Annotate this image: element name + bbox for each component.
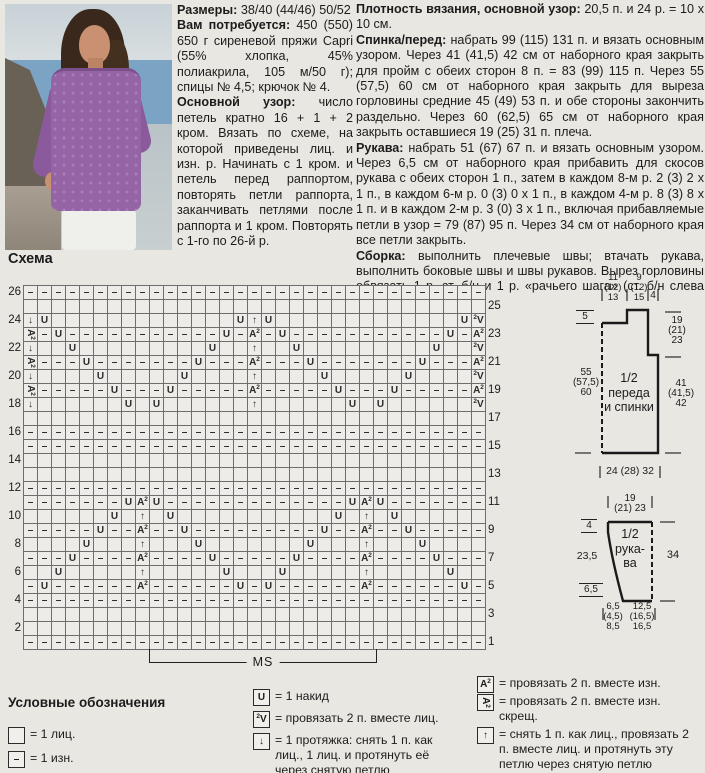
magazine-page: Размеры: 38/40 (44/46) 50/52Вам потребуе…	[0, 0, 705, 773]
chart-cell: –	[192, 552, 206, 566]
chart-cell	[374, 412, 388, 426]
sleeve-upper-height: 23,5	[572, 551, 602, 561]
chart-cell	[150, 566, 164, 580]
chart-cell: –	[108, 524, 122, 538]
chart-cell: –	[430, 384, 444, 398]
chart-cell	[52, 510, 66, 524]
chart-cell	[192, 622, 206, 636]
chart-cell	[220, 314, 234, 328]
pattern-paragraph: Размеры: 38/40 (44/46) 50/52	[177, 3, 353, 18]
photo-sweater-hem	[51, 202, 141, 215]
chart-cell: –	[136, 594, 150, 608]
chart-cell: –	[38, 328, 52, 342]
chart-cell	[108, 608, 122, 622]
chart-cell: –	[332, 524, 346, 538]
chart-cell: –	[444, 384, 458, 398]
chart-cell: –	[346, 552, 360, 566]
chart-cell: –	[66, 426, 80, 440]
chart-cell	[318, 454, 332, 468]
chart-cell: ↓	[24, 342, 38, 356]
chart-cell	[164, 300, 178, 314]
chart-cell: ↑	[360, 538, 374, 552]
chart-cell	[248, 622, 262, 636]
chart-cell: –	[206, 328, 220, 342]
chart-cell	[220, 468, 234, 482]
chart-cell: U	[262, 314, 276, 328]
chart-cell: –	[206, 496, 220, 510]
chart-cell	[290, 608, 304, 622]
chart-cell	[374, 314, 388, 328]
chart-cell: U	[164, 510, 178, 524]
chart-cell: –	[66, 524, 80, 538]
chart-cell: –	[94, 594, 108, 608]
chart-cell: –	[108, 552, 122, 566]
chart-cell: –	[290, 482, 304, 496]
chart-cell: –	[164, 440, 178, 454]
chart-cell	[262, 538, 276, 552]
chart-cell	[318, 300, 332, 314]
chart-cell: –	[178, 384, 192, 398]
chart-cell	[472, 454, 486, 468]
chart-cell	[178, 538, 192, 552]
knitting-chart: –––––––––––––––––––––––––––––––––↓UU↑UU2…	[23, 285, 486, 650]
chart-cell: U	[38, 314, 52, 328]
chart-cell: –	[122, 636, 136, 650]
chart-cell	[206, 608, 220, 622]
chart-cell	[458, 398, 472, 412]
chart-cell: –	[318, 426, 332, 440]
chart-cell: –	[52, 552, 66, 566]
legend-symbol-box: –	[8, 751, 25, 768]
chart-cell: 2V	[472, 314, 486, 328]
row-number: 13	[488, 467, 508, 481]
chart-cell: –	[430, 356, 444, 370]
chart-cell	[416, 468, 430, 482]
chart-cell: –	[136, 482, 150, 496]
chart-cell	[402, 510, 416, 524]
row-number	[0, 579, 21, 593]
chart-cell: –	[24, 286, 38, 300]
chart-cell	[472, 538, 486, 552]
chart-cell: U	[122, 496, 136, 510]
chart-cell	[472, 412, 486, 426]
chart-cell: A2	[24, 328, 38, 342]
chart-row-numbers-left: 2624222018161412108642	[0, 285, 21, 649]
chart-cell	[38, 538, 52, 552]
chart-cell: –	[38, 594, 52, 608]
chart-cell: –	[178, 286, 192, 300]
chart-cell	[346, 608, 360, 622]
chart-cell: –	[444, 356, 458, 370]
chart-cell: –	[346, 636, 360, 650]
chart-cell: –	[304, 286, 318, 300]
chart-cell: –	[24, 594, 38, 608]
chart-cell	[402, 454, 416, 468]
chart-cell	[52, 608, 66, 622]
chart-cell: –	[332, 286, 346, 300]
chart-cell: –	[416, 524, 430, 538]
chart-cell: –	[220, 594, 234, 608]
pattern-paragraph: Плотность вязания, основной узор: 20,5 п…	[356, 2, 704, 33]
chart-cell: –	[262, 594, 276, 608]
chart-cell: –	[234, 482, 248, 496]
chart-cell	[262, 412, 276, 426]
chart-cell	[430, 566, 444, 580]
chart-cell	[444, 608, 458, 622]
sleeve-bottom-right: 12,5(16,5)16,5	[625, 602, 659, 632]
chart-cell	[430, 314, 444, 328]
chart-cell: –	[164, 426, 178, 440]
chart-cell: ↓	[24, 370, 38, 384]
chart-cell	[192, 300, 206, 314]
chart-cell: –	[122, 580, 136, 594]
chart-cell	[94, 566, 108, 580]
chart-cell: –	[122, 524, 136, 538]
chart-cell: –	[220, 496, 234, 510]
chart-cell: ↑	[136, 538, 150, 552]
chart-cell	[458, 300, 472, 314]
chart-cell	[164, 608, 178, 622]
chart-cell: –	[304, 328, 318, 342]
chart-cell: –	[276, 440, 290, 454]
chart-cell	[192, 468, 206, 482]
legend-symbol-box: U	[253, 689, 270, 706]
chart-cell	[150, 342, 164, 356]
chart-cell: U	[346, 398, 360, 412]
chart-cell: A2	[136, 524, 150, 538]
chart-cell: –	[318, 286, 332, 300]
chart-cell: –	[458, 482, 472, 496]
chart-cell: U	[304, 356, 318, 370]
pattern-paragraph: Спинка/перед: набрать 99 (115) 131 п. и …	[356, 33, 704, 141]
row-number: 18	[0, 397, 21, 411]
chart-cell: –	[472, 524, 486, 538]
chart-cell	[430, 468, 444, 482]
chart-cell: –	[38, 286, 52, 300]
chart-cell	[472, 300, 486, 314]
chart-cell: ↑	[248, 398, 262, 412]
chart-cell	[360, 300, 374, 314]
chart-cell	[360, 342, 374, 356]
chart-cell: –	[80, 594, 94, 608]
body-armhole-depth: 19(21)23	[660, 316, 694, 346]
chart-cell	[444, 622, 458, 636]
chart-cell	[234, 300, 248, 314]
row-number: 8	[0, 537, 21, 551]
chart-cell: –	[416, 552, 430, 566]
chart-cell: –	[318, 328, 332, 342]
chart-cell	[66, 510, 80, 524]
chart-cell	[206, 538, 220, 552]
chart-cell	[38, 412, 52, 426]
chart-cell	[94, 412, 108, 426]
chart-cell	[402, 300, 416, 314]
chart-cell	[234, 510, 248, 524]
chart-cell	[304, 300, 318, 314]
chart-cell: –	[248, 594, 262, 608]
chart-cell	[318, 510, 332, 524]
chart-cell: –	[318, 440, 332, 454]
chart-cell: –	[290, 580, 304, 594]
chart-cell	[318, 342, 332, 356]
chart-cell: ↑	[248, 314, 262, 328]
chart-cell: –	[234, 328, 248, 342]
chart-cell	[80, 566, 94, 580]
chart-cell	[164, 412, 178, 426]
chart-cell: –	[472, 482, 486, 496]
chart-cell: –	[388, 286, 402, 300]
chart-cell	[290, 314, 304, 328]
chart-cell: –	[52, 496, 66, 510]
chart-cell: A2	[472, 384, 486, 398]
row-number: 7	[488, 551, 508, 565]
chart-cell: –	[52, 286, 66, 300]
row-number: 19	[488, 383, 508, 397]
chart-cell: –	[234, 594, 248, 608]
chart-cell: U	[94, 370, 108, 384]
chart-cell: U	[66, 342, 80, 356]
chart-cell: U	[458, 314, 472, 328]
row-number	[488, 453, 508, 467]
chart-cell: –	[94, 328, 108, 342]
chart-cell: U	[192, 356, 206, 370]
chart-cell: –	[416, 328, 430, 342]
chart-cell: –	[444, 482, 458, 496]
chart-cell	[220, 622, 234, 636]
chart-cell	[220, 412, 234, 426]
chart-cell	[52, 538, 66, 552]
chart-cell: ↓	[24, 398, 38, 412]
chart-cell: –	[304, 552, 318, 566]
legend-item: ↑= снять 1 п. как лиц., провязать 2 п. в…	[477, 727, 701, 772]
repeat-bracket: MS	[149, 649, 377, 663]
chart-cell	[122, 566, 136, 580]
chart-cell: –	[164, 552, 178, 566]
chart-cell: –	[80, 440, 94, 454]
row-number: 1	[488, 635, 508, 649]
chart-cell: –	[276, 524, 290, 538]
chart-cell: –	[346, 384, 360, 398]
chart-cell	[332, 538, 346, 552]
chart-cell	[290, 538, 304, 552]
chart-cell	[304, 510, 318, 524]
chart-cell: –	[332, 636, 346, 650]
row-number	[488, 313, 508, 327]
chart-cell	[458, 608, 472, 622]
row-number	[0, 635, 21, 649]
chart-cell: –	[80, 636, 94, 650]
chart-cell: U	[192, 538, 206, 552]
chart-cell: 2V	[472, 342, 486, 356]
chart-cell	[66, 314, 80, 328]
chart-cell: –	[332, 328, 346, 342]
chart-cell: –	[178, 580, 192, 594]
chart-cell	[374, 342, 388, 356]
row-number: 2	[0, 621, 21, 635]
row-number	[488, 509, 508, 523]
chart-cell	[178, 468, 192, 482]
chart-cell	[304, 608, 318, 622]
chart-cell: –	[52, 594, 66, 608]
chart-cell: –	[122, 286, 136, 300]
chart-cell: –	[220, 482, 234, 496]
chart-cell: –	[388, 524, 402, 538]
chart-cell	[276, 370, 290, 384]
row-number	[488, 425, 508, 439]
chart-cell	[178, 608, 192, 622]
chart-cell: ↑	[248, 370, 262, 384]
chart-cell: U	[304, 538, 318, 552]
chart-cell	[276, 454, 290, 468]
chart-cell	[416, 314, 430, 328]
chart-cell: –	[360, 482, 374, 496]
chart-cell: U	[388, 510, 402, 524]
chart-cell	[360, 398, 374, 412]
chart-cell	[136, 412, 150, 426]
chart-cell: U	[290, 552, 304, 566]
chart-cell: –	[248, 286, 262, 300]
chart-cell: U	[220, 566, 234, 580]
chart-cell: –	[164, 482, 178, 496]
chart-cell: –	[248, 440, 262, 454]
chart-cell	[178, 412, 192, 426]
chart-cell	[150, 314, 164, 328]
chart-cell	[52, 300, 66, 314]
chart-cell	[430, 608, 444, 622]
row-number: 12	[0, 481, 21, 495]
chart-cell: –	[80, 496, 94, 510]
chart-cell	[66, 454, 80, 468]
chart-cell: –	[360, 440, 374, 454]
chart-cell: –	[346, 594, 360, 608]
chart-cell	[150, 538, 164, 552]
row-number	[0, 495, 21, 509]
chart-cell	[24, 412, 38, 426]
legend-symbol-box: A2	[477, 694, 494, 711]
chart-cell: –	[164, 580, 178, 594]
chart-cell	[402, 314, 416, 328]
chart-cell: –	[234, 286, 248, 300]
chart-cell: –	[262, 636, 276, 650]
chart-cell: –	[150, 328, 164, 342]
row-number	[0, 299, 21, 313]
chart-cell	[164, 622, 178, 636]
chart-cell	[66, 608, 80, 622]
chart-cell: –	[192, 580, 206, 594]
chart-cell	[122, 622, 136, 636]
chart-cell: –	[402, 328, 416, 342]
chart-cell	[346, 566, 360, 580]
chart-cell	[444, 370, 458, 384]
chart-cell	[150, 300, 164, 314]
chart-cell: –	[290, 426, 304, 440]
chart-cell	[80, 454, 94, 468]
chart-cell	[374, 370, 388, 384]
pattern-paragraph: Рукава: набрать 51 (67) 67 п. и вязать о…	[356, 141, 704, 249]
chart-cell: –	[458, 426, 472, 440]
chart-cell	[332, 566, 346, 580]
chart-cell: –	[108, 580, 122, 594]
chart-cell	[444, 468, 458, 482]
chart-cell: –	[304, 384, 318, 398]
chart-cell: U	[290, 342, 304, 356]
chart-cell: ↑	[248, 342, 262, 356]
chart-cell: –	[402, 552, 416, 566]
chart-cell	[24, 300, 38, 314]
chart-cell	[262, 454, 276, 468]
chart-cell: U	[416, 356, 430, 370]
chart-cell	[24, 510, 38, 524]
chart-cell	[234, 608, 248, 622]
chart-cell: –	[136, 286, 150, 300]
chart-cell	[318, 398, 332, 412]
chart-cell	[164, 454, 178, 468]
chart-cell: –	[52, 524, 66, 538]
chart-cell	[108, 566, 122, 580]
chart-cell	[122, 510, 136, 524]
chart-cell	[444, 314, 458, 328]
chart-cell: U	[402, 524, 416, 538]
chart-cell: –	[38, 384, 52, 398]
chart-cell	[248, 608, 262, 622]
chart-cell: –	[262, 328, 276, 342]
chart-cell	[108, 454, 122, 468]
chart-cell: –	[192, 440, 206, 454]
chart-cell: –	[66, 328, 80, 342]
chart-cell	[388, 412, 402, 426]
chart-cell: –	[192, 482, 206, 496]
chart-cell: –	[66, 482, 80, 496]
chart-cell: –	[206, 524, 220, 538]
row-number: 6	[0, 565, 21, 579]
chart-cell: –	[332, 356, 346, 370]
chart-cell: –	[374, 580, 388, 594]
chart-cell: –	[52, 482, 66, 496]
chart-cell: –	[122, 552, 136, 566]
chart-cell: –	[24, 580, 38, 594]
chart-cell: –	[136, 384, 150, 398]
chart-cell: –	[402, 496, 416, 510]
chart-cell: –	[80, 552, 94, 566]
row-number: 20	[0, 369, 21, 383]
chart-cell	[52, 370, 66, 384]
chart-cell	[472, 622, 486, 636]
chart-cell	[234, 468, 248, 482]
chart-cell: U	[94, 524, 108, 538]
chart-cell: –	[122, 356, 136, 370]
chart-cell	[220, 608, 234, 622]
row-number	[488, 481, 508, 495]
chart-cell	[178, 454, 192, 468]
chart-cell: –	[472, 440, 486, 454]
chart-cell	[150, 608, 164, 622]
chart-cell: U	[164, 384, 178, 398]
chart-cell	[332, 370, 346, 384]
chart-cell	[38, 468, 52, 482]
chart-cell: –	[346, 524, 360, 538]
chart-cell	[458, 468, 472, 482]
chart-cell: –	[220, 636, 234, 650]
chart-cell	[108, 622, 122, 636]
chart-cell: –	[248, 426, 262, 440]
legend-symbol-box: 2V	[253, 711, 270, 728]
chart-cell: –	[318, 552, 332, 566]
chart-cell	[290, 412, 304, 426]
chart-cell	[458, 342, 472, 356]
chart-cell	[94, 342, 108, 356]
chart-cell	[304, 412, 318, 426]
chart-cell: –	[290, 594, 304, 608]
